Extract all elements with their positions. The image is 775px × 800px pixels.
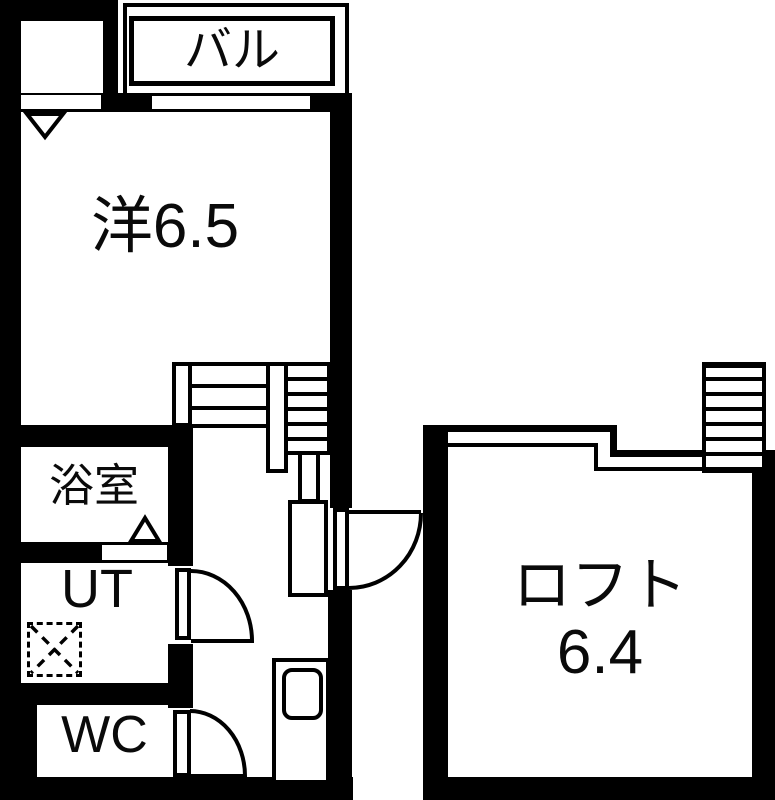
ut-door-swing-arc (191, 571, 252, 641)
entrance-door-swing-arc (349, 513, 421, 588)
toilet-label: WC (37, 708, 172, 763)
window-swing-marker-icon (27, 114, 63, 137)
bathroom-folding-door-marker-icon (131, 518, 159, 541)
loft-label: ロフト (450, 556, 750, 617)
loft-size-label: 6.4 (450, 620, 750, 685)
washer-space-cross (31, 626, 78, 673)
living-room-label: 洋6.5 (55, 194, 275, 259)
wc-door-swing-arc (190, 711, 245, 776)
utility-label: UT (22, 561, 172, 618)
floor-plan: バル 洋6.5 浴室 (0, 0, 775, 800)
bathroom-label: 浴室 (20, 462, 168, 509)
